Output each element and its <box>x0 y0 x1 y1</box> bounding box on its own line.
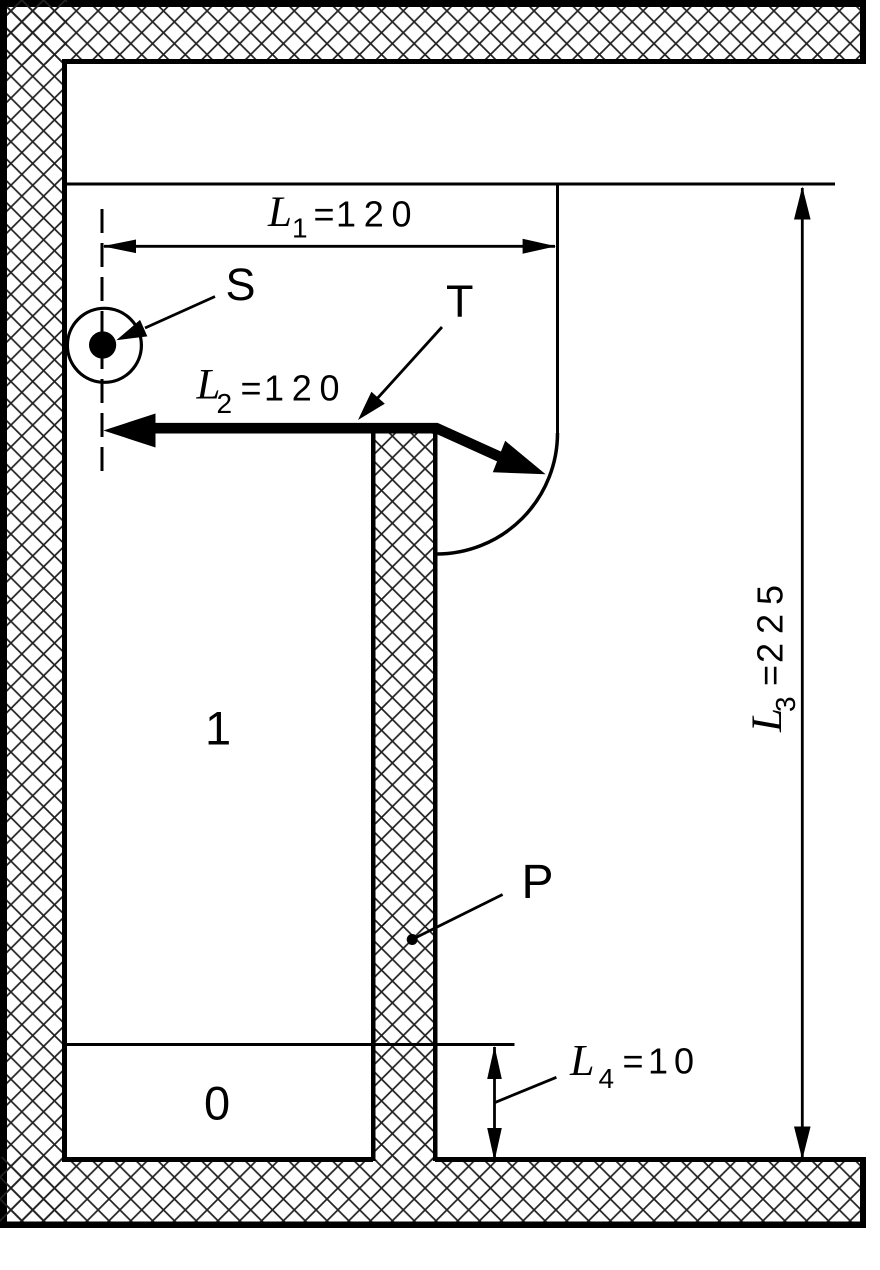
svg-text:1: 1 <box>205 701 231 754</box>
svg-text:=: = <box>750 665 791 686</box>
svg-text:0: 0 <box>204 1077 230 1130</box>
svg-text:225: 225 <box>750 585 791 663</box>
svg-text:120: 120 <box>264 368 340 409</box>
svg-text:S: S <box>226 259 256 310</box>
svg-text:P: P <box>522 856 554 909</box>
svg-text:3: 3 <box>770 696 801 712</box>
svg-text:T: T <box>446 276 474 327</box>
svg-text:120: 120 <box>336 194 412 235</box>
svg-text:L: L <box>569 1036 594 1085</box>
svg-text:=: = <box>314 194 335 235</box>
svg-text:4: 4 <box>599 1063 615 1094</box>
svg-text:L: L <box>267 189 292 236</box>
svg-text:=: = <box>623 1041 644 1082</box>
svg-text:=: = <box>241 368 262 409</box>
svg-text:2: 2 <box>217 388 233 419</box>
svg-text:1: 1 <box>292 212 308 243</box>
